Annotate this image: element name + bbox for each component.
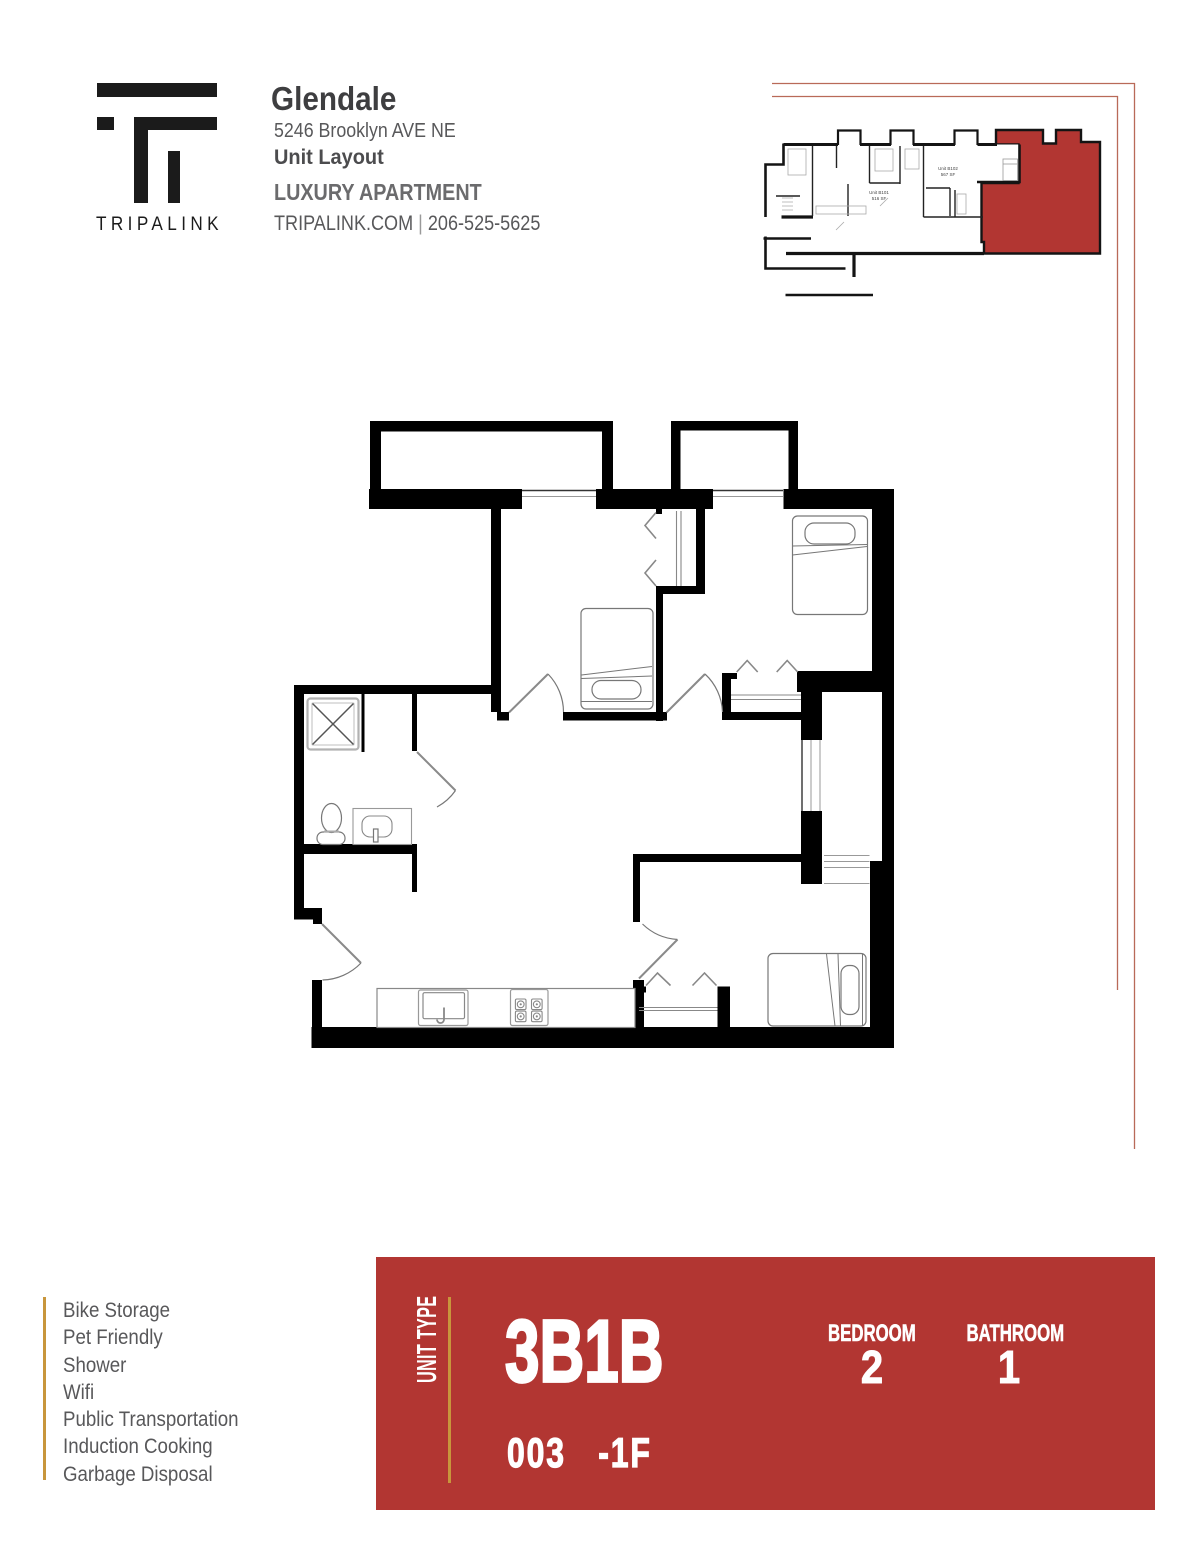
svg-text:516 SF: 516 SF [872,196,887,201]
svg-text:567 SF: 567 SF [941,172,956,177]
svg-text:Unit B102: Unit B102 [938,166,958,171]
svg-text:Unit B101: Unit B101 [869,190,889,195]
